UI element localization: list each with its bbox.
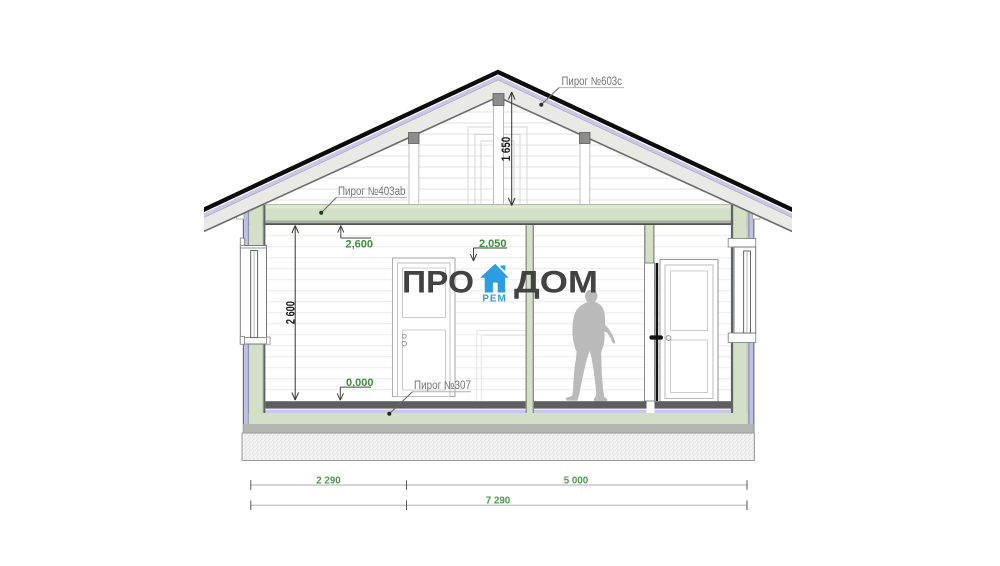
svg-text:2 600: 2 600 [284, 301, 298, 324]
svg-text:ПРО: ПРО [402, 264, 474, 300]
svg-text:0,000: 0,000 [346, 377, 374, 389]
svg-text:Пирог №603c: Пирог №603c [562, 76, 623, 88]
svg-text:1 650: 1 650 [499, 136, 513, 161]
svg-text:РЕМ: РЕМ [482, 294, 506, 305]
svg-text:Пирог №307: Пирог №307 [414, 380, 471, 392]
svg-text:2 290: 2 290 [316, 475, 341, 486]
svg-text:7 290: 7 290 [486, 496, 511, 507]
svg-text:5 000: 5 000 [564, 475, 589, 486]
svg-text:2,600: 2,600 [346, 239, 374, 251]
svg-text:2,050: 2,050 [479, 238, 507, 250]
svg-text:ДОМ: ДОМ [514, 264, 598, 300]
svg-text:Пирог №403ab: Пирог №403ab [338, 186, 406, 198]
